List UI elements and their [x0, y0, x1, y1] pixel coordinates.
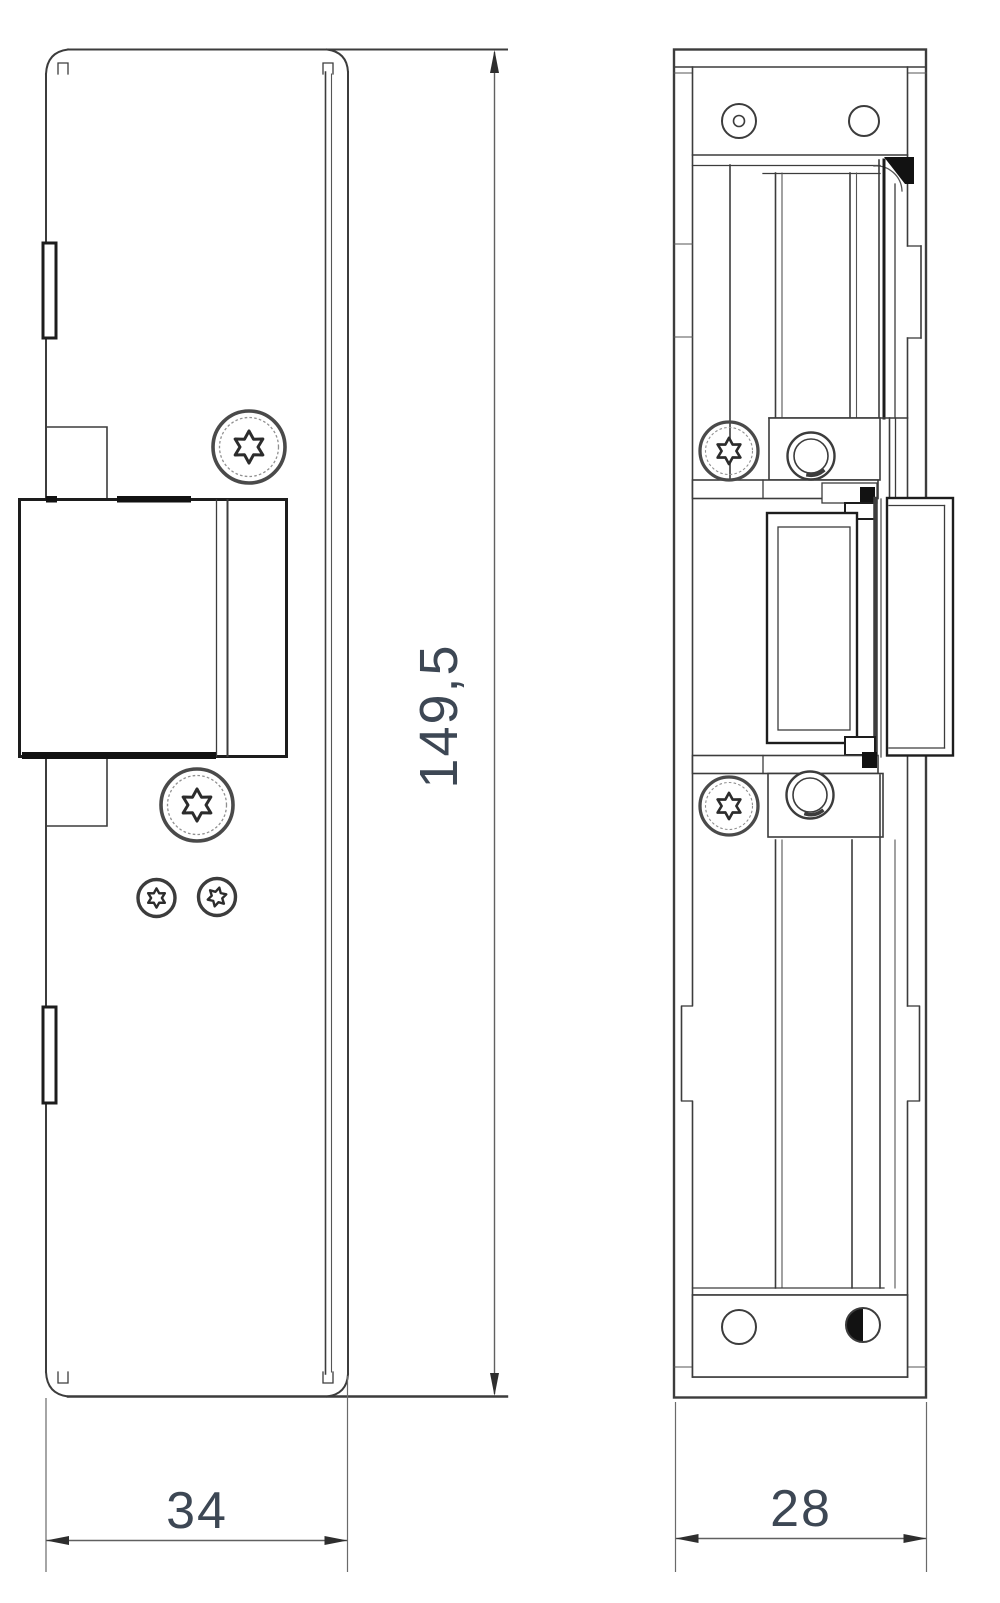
- channel-lines-lower: [693, 775, 908, 1295]
- edge-slot-lower: [43, 1007, 56, 1103]
- small-torx-screw-left-icon: [138, 880, 175, 917]
- mid-mechanism: [693, 418, 881, 519]
- top-mounting-plate: [693, 104, 915, 191]
- side-view: [674, 50, 953, 1398]
- latch-body: [767, 499, 881, 757]
- side-torx-screw-upper-icon: [700, 422, 758, 480]
- keeper-block: [887, 498, 953, 756]
- torx-screw-lower-icon: [161, 769, 233, 841]
- mounting-hole-icon: [849, 106, 879, 136]
- torx-screw-upper-icon: [213, 411, 285, 483]
- roller-lower-icon: [787, 772, 834, 819]
- small-torx-screw-right-icon: [199, 879, 236, 916]
- front-width-dimension-label: 34: [166, 1482, 228, 1540]
- pilot-hole-icon: [722, 104, 756, 138]
- side-torx-screw-lower-icon: [700, 777, 758, 835]
- edge-slot-upper: [43, 243, 56, 338]
- front-width-dimension: 34: [46, 1376, 348, 1572]
- side-depth-dimension-label: 28: [770, 1480, 832, 1538]
- bottom-mounting-plate: [693, 1295, 908, 1377]
- technical-drawing-canvas: 149,5 34 28: [0, 0, 1000, 1603]
- side-depth-dimension: 28: [676, 1402, 927, 1572]
- height-dimension: 149,5: [409, 50, 499, 1396]
- height-dimension-label: 149,5: [409, 643, 469, 788]
- latch-block: [20, 496, 287, 759]
